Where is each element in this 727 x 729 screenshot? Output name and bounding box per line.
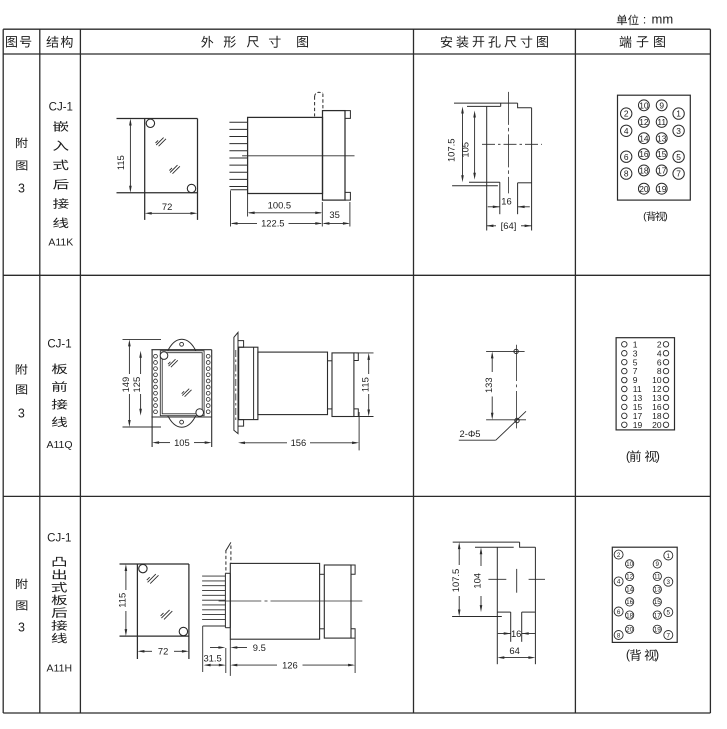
svg-text:13: 13 xyxy=(654,587,662,594)
svg-text:6: 6 xyxy=(624,152,629,162)
svg-text:7: 7 xyxy=(676,169,681,179)
svg-text::: : xyxy=(643,13,646,27)
svg-text:10: 10 xyxy=(639,100,649,110)
svg-text:14: 14 xyxy=(626,587,634,594)
svg-text:126: 126 xyxy=(282,659,298,670)
svg-text:3: 3 xyxy=(676,126,681,136)
svg-text:133: 133 xyxy=(483,377,494,393)
svg-text:72: 72 xyxy=(158,646,168,657)
svg-text:115: 115 xyxy=(117,593,128,608)
svg-text:18: 18 xyxy=(639,166,649,176)
svg-text:[64]: [64] xyxy=(501,220,517,231)
svg-text:16: 16 xyxy=(626,599,634,606)
svg-text:3: 3 xyxy=(18,407,25,421)
svg-text:16: 16 xyxy=(501,195,511,206)
svg-text:3: 3 xyxy=(18,621,25,635)
svg-text:2-Φ5: 2-Φ5 xyxy=(459,428,480,439)
svg-text:104: 104 xyxy=(472,573,483,589)
svg-text:7: 7 xyxy=(667,632,671,639)
svg-text:12: 12 xyxy=(639,117,649,127)
svg-text:5: 5 xyxy=(667,609,671,616)
svg-text:1: 1 xyxy=(667,553,671,560)
svg-text:9: 9 xyxy=(656,561,660,568)
svg-text:15: 15 xyxy=(657,149,667,159)
svg-text:115: 115 xyxy=(115,155,126,170)
svg-text:(: ( xyxy=(643,211,647,223)
svg-text:105: 105 xyxy=(174,437,190,448)
svg-text:CJ-1: CJ-1 xyxy=(47,339,71,351)
svg-text:): ) xyxy=(655,648,659,662)
svg-text:A11K: A11K xyxy=(48,237,73,249)
svg-text:16: 16 xyxy=(511,628,521,639)
svg-text:9: 9 xyxy=(659,100,664,110)
svg-text:115: 115 xyxy=(359,377,370,392)
svg-text:10: 10 xyxy=(626,561,634,568)
svg-text:3: 3 xyxy=(18,182,25,196)
svg-text:9.5: 9.5 xyxy=(253,642,266,653)
svg-text:CJ-1: CJ-1 xyxy=(49,101,73,113)
svg-text:12: 12 xyxy=(626,574,634,581)
svg-text:5: 5 xyxy=(676,152,681,162)
svg-text:31.5: 31.5 xyxy=(203,653,221,664)
svg-text:35: 35 xyxy=(329,209,339,220)
svg-text:17: 17 xyxy=(657,166,667,176)
svg-text:20: 20 xyxy=(626,627,634,634)
svg-text:): ) xyxy=(656,449,660,463)
svg-text:A11H: A11H xyxy=(47,663,73,675)
svg-text:17: 17 xyxy=(654,612,662,619)
svg-text:100.5: 100.5 xyxy=(268,200,291,211)
svg-text:CJ-1: CJ-1 xyxy=(47,533,71,545)
svg-text:4: 4 xyxy=(624,126,629,136)
svg-text:20: 20 xyxy=(639,184,649,194)
svg-text:A11Q: A11Q xyxy=(46,439,72,451)
svg-text:4: 4 xyxy=(617,579,621,586)
svg-text:122.5: 122.5 xyxy=(261,218,284,229)
svg-text:72: 72 xyxy=(162,201,172,212)
svg-text:19: 19 xyxy=(654,627,662,634)
svg-text:107.5: 107.5 xyxy=(450,569,461,592)
svg-text:): ) xyxy=(664,211,668,223)
svg-text:2: 2 xyxy=(624,109,629,119)
svg-text:8: 8 xyxy=(617,632,621,639)
svg-text:6: 6 xyxy=(617,609,621,616)
svg-text:107.5: 107.5 xyxy=(446,139,457,162)
svg-text:3: 3 xyxy=(667,579,671,586)
svg-text:mm: mm xyxy=(652,12,674,27)
svg-text:125: 125 xyxy=(131,377,142,393)
svg-text:20: 20 xyxy=(652,420,662,430)
svg-text:2: 2 xyxy=(617,552,621,559)
svg-text:18: 18 xyxy=(626,612,634,619)
svg-text:156: 156 xyxy=(291,437,307,448)
svg-text:19: 19 xyxy=(657,184,667,194)
svg-text:64: 64 xyxy=(509,645,519,656)
svg-text:8: 8 xyxy=(624,169,629,179)
svg-text:13: 13 xyxy=(657,133,667,143)
svg-text:19: 19 xyxy=(633,420,643,430)
svg-text:11: 11 xyxy=(654,574,661,581)
svg-text:149: 149 xyxy=(120,377,131,393)
svg-text:16: 16 xyxy=(639,149,649,159)
svg-text:105: 105 xyxy=(459,142,470,158)
svg-text:15: 15 xyxy=(654,599,662,606)
svg-text:14: 14 xyxy=(639,133,649,143)
svg-text:1: 1 xyxy=(676,109,681,119)
svg-text:11: 11 xyxy=(657,117,666,127)
